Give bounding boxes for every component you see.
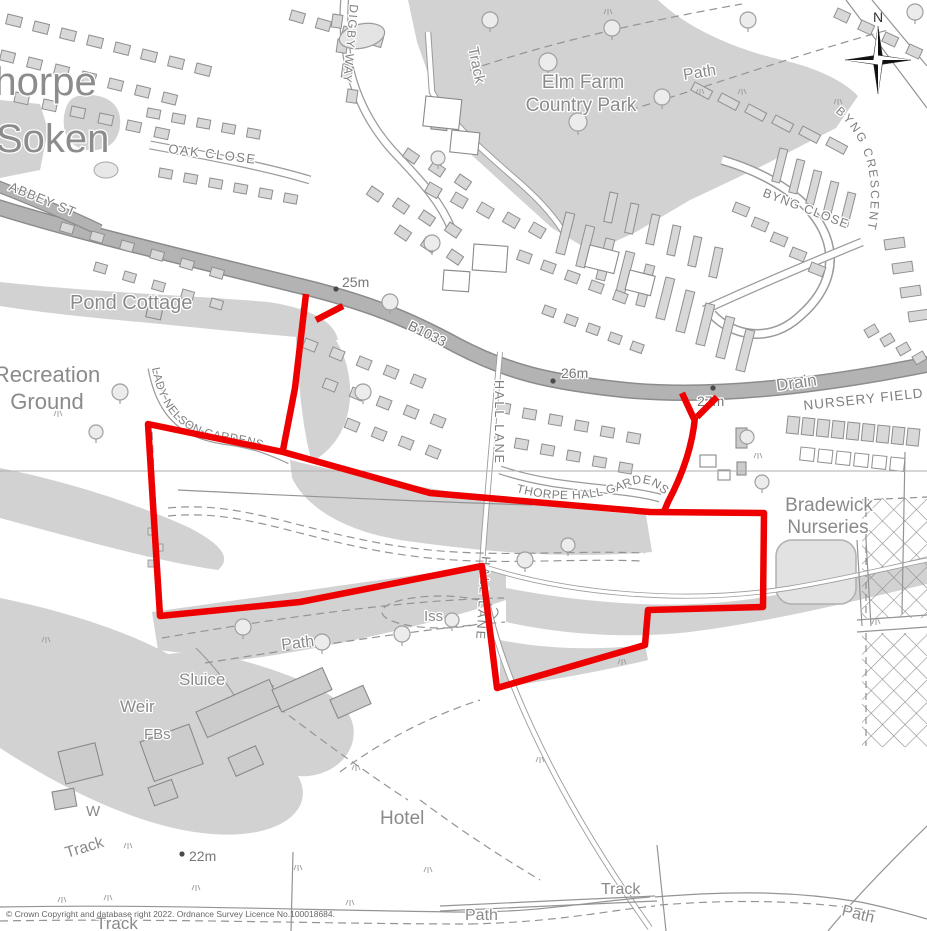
building — [344, 418, 360, 432]
building — [108, 78, 124, 91]
label-path-se: Path — [840, 902, 876, 926]
building — [146, 108, 160, 119]
building — [876, 425, 890, 443]
building — [171, 113, 185, 124]
tree-icon — [755, 475, 769, 489]
map-svg: Thorpe Soken OAK CLOSE ABBEY ST DIGBY WA… — [0, 0, 927, 931]
building — [392, 198, 409, 214]
grass-tuft-icon — [192, 885, 200, 891]
building — [789, 247, 807, 262]
recreation-sw-belt — [0, 468, 224, 570]
building-large — [52, 788, 77, 810]
grass-tuft-icon — [352, 765, 360, 771]
building — [315, 18, 331, 31]
nursery-crosshatch-north — [862, 498, 927, 618]
tree-icon — [654, 89, 670, 105]
building — [398, 436, 414, 450]
glasshouse-outline — [890, 457, 905, 471]
building-outline — [700, 455, 716, 467]
building-outline — [585, 245, 619, 274]
street-byng-crescent: BYNG CRESCENT — [833, 104, 882, 233]
label-hotel: Hotel — [380, 808, 424, 829]
building — [589, 280, 605, 294]
building — [162, 92, 178, 105]
north-arrow: N — [845, 9, 911, 94]
building — [503, 212, 521, 229]
building — [548, 414, 563, 426]
building — [564, 314, 578, 327]
label-pond-cottage: Pond Cottage — [70, 292, 192, 314]
building — [906, 428, 920, 446]
grass-tuft-icon — [104, 895, 112, 901]
building — [383, 365, 399, 379]
building — [789, 159, 805, 194]
site-boundary-arm-east — [663, 417, 695, 514]
tree-icon — [740, 430, 754, 444]
building — [732, 202, 750, 217]
label-fbs: FBs — [144, 726, 171, 743]
grass-tuft-icon — [294, 865, 302, 871]
spot-height-26m: 26m — [561, 365, 588, 381]
tree-icon — [445, 613, 459, 627]
building — [451, 192, 469, 209]
label-path-mid: Path — [280, 633, 315, 654]
glasshouse-outline — [836, 451, 851, 465]
building — [861, 424, 875, 442]
grass-tuft-icon — [872, 619, 880, 625]
building — [831, 421, 845, 439]
building — [541, 260, 557, 274]
building — [87, 35, 104, 48]
tree-icon — [394, 626, 410, 642]
building — [258, 188, 272, 199]
tree-icon — [424, 235, 440, 251]
grass-tuft-icon — [424, 867, 432, 873]
building — [542, 305, 556, 318]
building — [221, 123, 235, 134]
building — [566, 450, 581, 462]
building — [517, 250, 533, 264]
grass-tuft-icon — [124, 843, 132, 849]
building — [751, 217, 769, 232]
label-recreation-1: Recreation — [0, 362, 100, 387]
building — [808, 262, 826, 277]
glasshouse-outline — [800, 447, 815, 461]
grass-tuft-icon — [58, 897, 66, 903]
building — [430, 414, 446, 428]
building — [208, 178, 222, 189]
building — [183, 173, 197, 184]
street-byng-close: BYNG CLOSE — [761, 186, 851, 232]
building-outline — [450, 130, 480, 155]
building — [908, 309, 927, 322]
building — [371, 427, 387, 441]
building — [630, 341, 644, 354]
building — [834, 8, 851, 23]
building — [608, 332, 622, 345]
building — [418, 210, 435, 226]
building — [356, 356, 372, 370]
building — [196, 118, 210, 129]
building — [864, 324, 879, 338]
label-bradewick-2: Nurseries — [787, 517, 868, 538]
building-large — [330, 685, 371, 718]
building — [454, 174, 471, 190]
tree-icon — [561, 538, 575, 552]
building — [600, 426, 615, 438]
label-track-s: Track — [601, 881, 641, 898]
building — [514, 438, 529, 450]
reservoir — [776, 540, 856, 604]
tree-icon — [314, 634, 330, 650]
building — [141, 49, 158, 62]
building — [410, 374, 426, 388]
building — [846, 422, 860, 440]
label-w: W — [86, 803, 101, 820]
building — [806, 170, 822, 205]
building — [667, 225, 681, 256]
copyright-attribution: © Crown Copyright and database right 202… — [6, 909, 335, 919]
building — [158, 168, 172, 179]
label-path-s: Path — [465, 907, 498, 924]
building — [696, 303, 715, 346]
building — [168, 56, 185, 69]
byng-crescent-textpath: BYNG CRESCENT — [833, 104, 882, 233]
building — [613, 290, 629, 304]
tree-icon — [431, 151, 445, 165]
building — [233, 183, 247, 194]
building — [816, 419, 830, 437]
os-map-canvas: Thorpe Soken OAK CLOSE ABBEY ST DIGBY WA… — [0, 0, 927, 931]
label-recreation-2: Ground — [10, 389, 83, 414]
building — [586, 323, 600, 336]
building — [477, 202, 495, 219]
building — [880, 333, 895, 347]
spot-height-25m: 25m — [342, 274, 369, 290]
glasshouse-outline — [818, 449, 833, 463]
building — [900, 285, 921, 298]
building — [376, 396, 392, 410]
grass-tuft-icon — [754, 453, 762, 459]
building — [676, 290, 695, 333]
label-weir: Weir — [120, 697, 155, 716]
grass-tuft-icon — [536, 757, 544, 763]
label-bradewick-1: Bradewick — [785, 495, 873, 516]
tree-icon — [604, 20, 620, 36]
tree-icon — [112, 384, 128, 400]
glasshouse-outline — [872, 455, 887, 469]
building — [529, 222, 547, 239]
tree-icon — [740, 12, 756, 28]
building — [394, 225, 411, 241]
building — [60, 28, 77, 41]
building — [123, 271, 137, 283]
label-track-sw: Track — [63, 834, 107, 862]
building — [6, 14, 23, 27]
nursery-crosshatch-south — [862, 633, 927, 747]
label-elm-farm-2: Country Park — [526, 95, 637, 116]
building — [801, 418, 815, 436]
tree-icon — [907, 4, 923, 20]
building — [522, 408, 537, 420]
tree-icon — [482, 12, 498, 28]
building — [826, 137, 848, 154]
building — [891, 427, 905, 445]
building — [565, 270, 581, 284]
place-name-soken: Soken — [0, 117, 109, 161]
building — [346, 89, 358, 103]
site-boundary-arm-west-tip — [316, 306, 343, 320]
label-elm-farm-1: Elm Farm — [542, 72, 624, 93]
north-arrow-n-label: N — [873, 9, 883, 25]
spot-height-22m: 22m — [189, 848, 216, 864]
building — [656, 277, 675, 320]
building — [33, 21, 50, 34]
place-name-thorpe: Thorpe — [0, 60, 97, 104]
building — [688, 236, 702, 267]
building — [592, 456, 607, 468]
tree-icon — [517, 552, 533, 568]
building — [540, 444, 555, 456]
tree-icon — [539, 53, 557, 71]
small-pond — [94, 162, 118, 178]
building — [884, 237, 905, 250]
building — [152, 280, 166, 292]
building — [154, 127, 170, 140]
tree-icon — [89, 425, 103, 439]
building — [135, 85, 151, 98]
street-oak-close: OAK CLOSE — [168, 141, 258, 167]
building — [403, 405, 419, 419]
building-large — [737, 462, 746, 475]
building — [283, 193, 297, 204]
building — [94, 262, 108, 274]
building — [195, 63, 212, 76]
tree-icon — [382, 294, 398, 310]
building — [574, 420, 589, 432]
building — [626, 432, 641, 444]
compass-star-white-halves — [845, 26, 911, 94]
building — [425, 445, 441, 459]
tree-icon — [355, 384, 371, 400]
building — [896, 342, 911, 356]
building — [882, 32, 899, 47]
building — [770, 232, 788, 247]
label-iss: Iss — [424, 608, 443, 625]
building — [892, 261, 913, 274]
glasshouse-outline — [854, 453, 869, 467]
building — [906, 44, 923, 59]
building — [114, 42, 131, 55]
building — [618, 462, 633, 474]
building — [331, 14, 343, 28]
building — [786, 416, 800, 434]
building — [289, 10, 305, 23]
building — [446, 249, 463, 265]
tree-icon — [235, 619, 251, 635]
building — [246, 128, 260, 139]
street-hall-lane-north: HALL LANE — [492, 380, 506, 465]
label-sluice: Sluice — [179, 670, 225, 689]
grass-tuft-icon — [346, 900, 354, 906]
building — [126, 120, 142, 133]
building-outline — [472, 244, 508, 272]
building — [709, 247, 723, 278]
building — [366, 186, 383, 202]
building-outline — [443, 270, 470, 292]
building-outline — [423, 96, 462, 130]
